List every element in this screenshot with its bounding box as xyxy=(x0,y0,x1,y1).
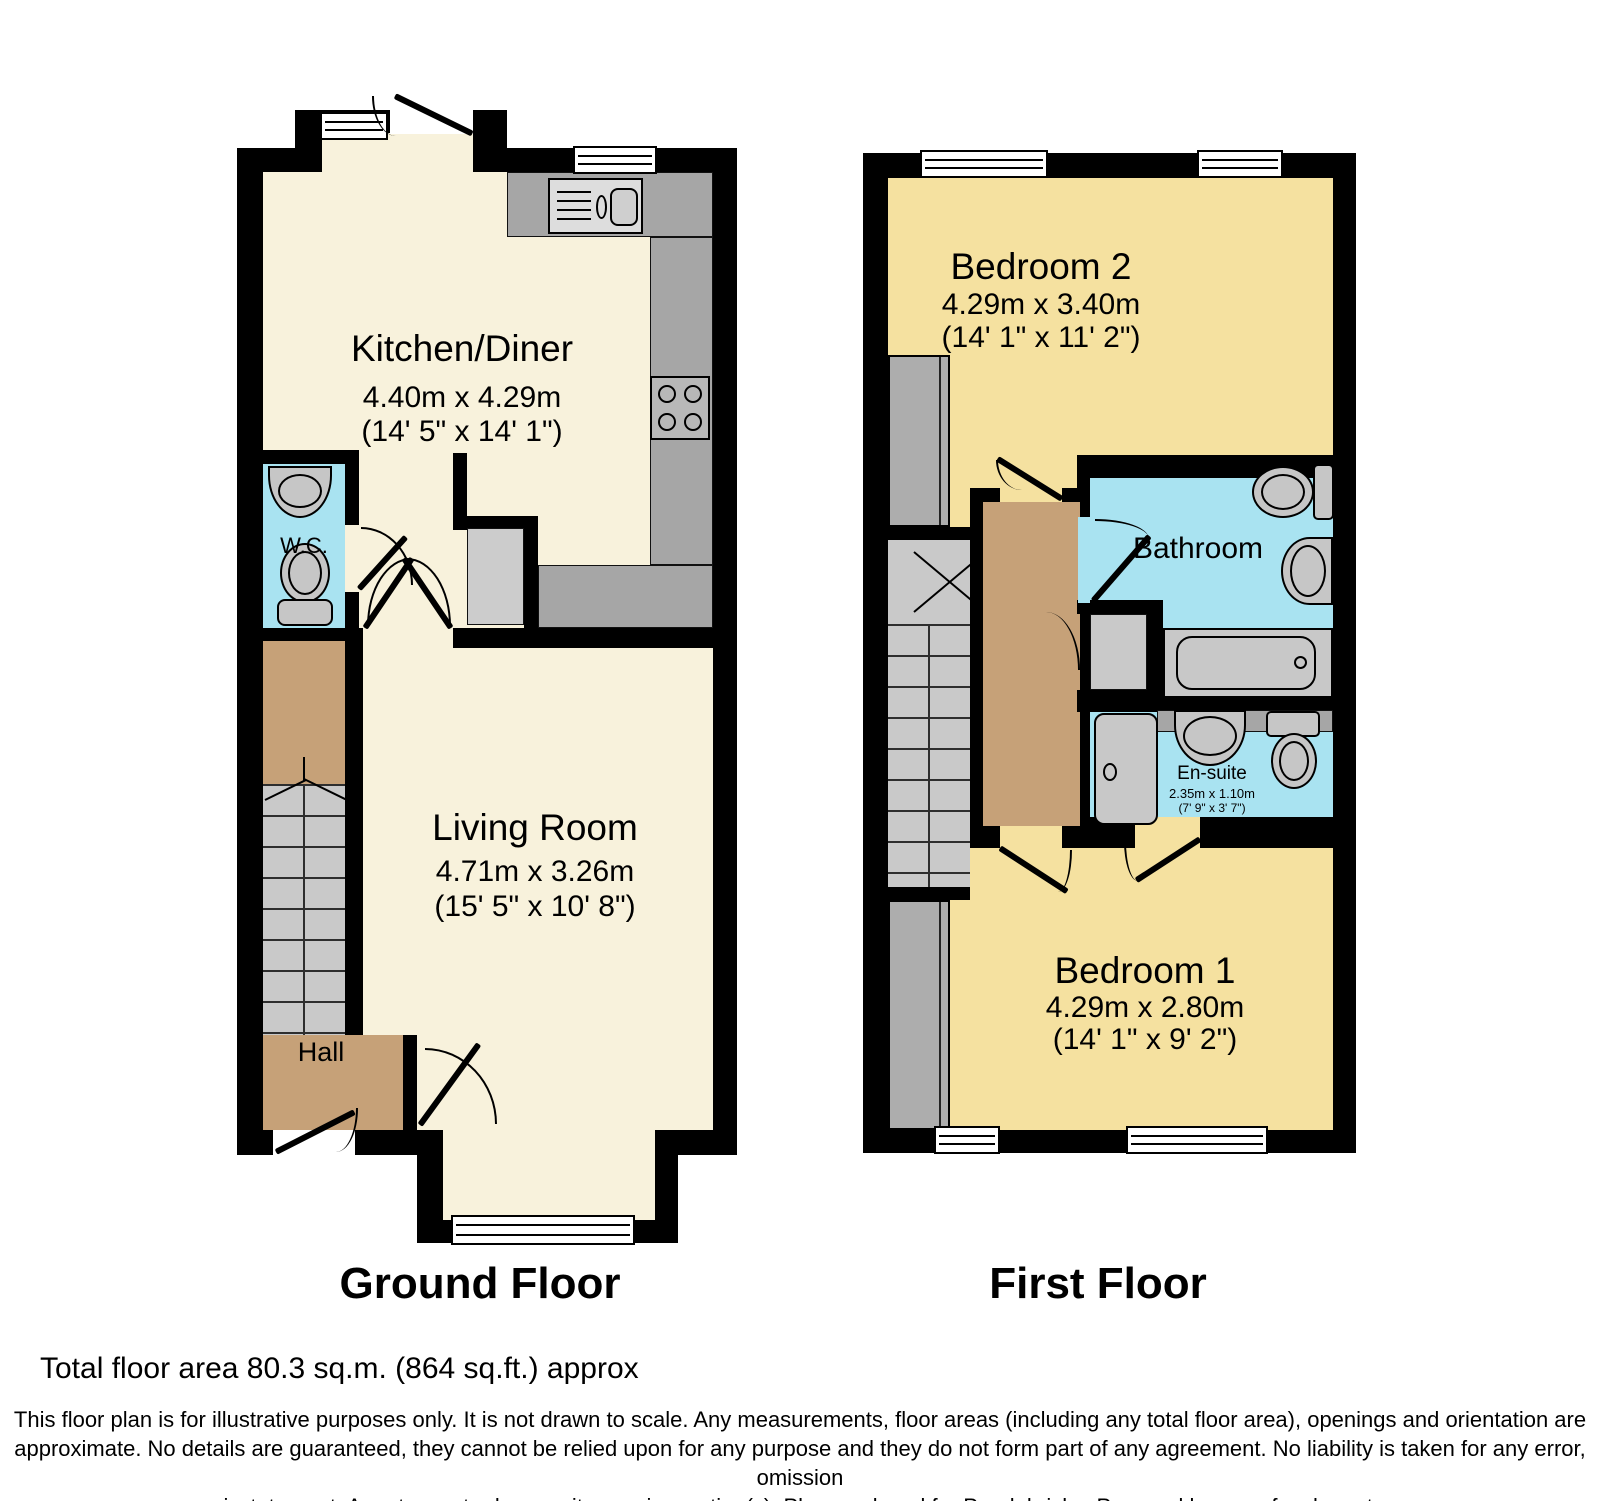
room-dim-metric: 4.29m x 3.40m xyxy=(942,290,1140,320)
room-dim-metric: 4.40m x 4.29m xyxy=(363,383,561,413)
stairs xyxy=(263,784,345,1035)
door-opening xyxy=(1000,826,1062,848)
cupboard xyxy=(1090,614,1147,690)
room-title-wc: W.C. xyxy=(280,535,328,557)
window xyxy=(1197,150,1283,178)
wall xyxy=(403,1035,417,1130)
bathroom-cistern xyxy=(1313,464,1334,520)
room-dim-metric: 4.71m x 3.26m xyxy=(436,857,634,887)
hob-ring xyxy=(684,413,702,431)
window xyxy=(451,1215,635,1245)
bathroom-basin-bowl xyxy=(1290,545,1326,597)
shower-drain xyxy=(1103,763,1117,781)
wall xyxy=(345,628,363,1035)
room-dim-metric: 2.35m x 1.10m xyxy=(1169,787,1255,800)
living-room-floor xyxy=(443,1130,655,1220)
room-title-bedroom1: Bedroom 1 xyxy=(1055,952,1236,989)
wall xyxy=(524,516,538,630)
window xyxy=(1126,1126,1268,1154)
room-dim-imperial: (14' 1" x 9' 2") xyxy=(1053,1025,1238,1055)
kitchen-cupboard xyxy=(467,528,524,625)
first-floor-caption: First Floor xyxy=(989,1259,1207,1309)
stair-treads xyxy=(263,784,345,1035)
ground-floor-caption: Ground Floor xyxy=(339,1259,620,1309)
room-dim-imperial: (15' 5" x 10' 8") xyxy=(434,892,635,922)
wardrobe xyxy=(888,900,950,1130)
wall xyxy=(263,628,345,641)
stairs xyxy=(888,540,970,887)
wardrobe xyxy=(888,355,950,527)
disclaimer-line: approximate. No details are guaranteed, … xyxy=(0,1434,1600,1492)
room-title-bathroom: Bathroom xyxy=(1133,534,1263,564)
kitchen-counter xyxy=(538,565,713,628)
disclaimer-line: or misstatement. A party must rely upon … xyxy=(0,1492,1600,1501)
stair-arrow xyxy=(303,757,305,781)
wall xyxy=(345,450,359,525)
shower-icon xyxy=(1094,713,1158,825)
disclaimer-line: This floor plan is for illustrative purp… xyxy=(0,1405,1600,1434)
wall xyxy=(453,453,467,518)
disclaimer: This floor plan is for illustrative purp… xyxy=(0,1405,1600,1501)
room-title-kitchen: Kitchen/Diner xyxy=(351,330,573,367)
wall xyxy=(453,628,713,648)
bath-icon xyxy=(1163,628,1333,698)
room-dim-imperial: (14' 5" x 14' 1") xyxy=(361,417,562,447)
wall xyxy=(345,592,359,628)
ensuite-basin-bowl xyxy=(1183,716,1237,756)
room-title-ensuite: En-suite xyxy=(1177,764,1247,783)
room-title-bedroom2: Bedroom 2 xyxy=(951,248,1132,285)
room-dim-imperial: (14' 1" x 11' 2") xyxy=(942,323,1141,353)
room-title-living: Living Room xyxy=(432,809,638,846)
ensuite-toilet-bowl xyxy=(1279,741,1309,781)
hob-ring xyxy=(658,413,676,431)
sink-bowl xyxy=(610,188,638,226)
wc-basin-bowl xyxy=(278,474,322,508)
bathroom-toilet-bowl xyxy=(1261,474,1305,510)
total-floor-area: Total floor area 80.3 sq.m. (864 sq.ft.)… xyxy=(40,1352,639,1386)
window xyxy=(920,150,1048,178)
bathroom-basin-icon xyxy=(1281,537,1333,605)
floor-plan: Kitchen/Diner 4.40m x 4.29m (14' 5" x 14… xyxy=(0,0,1600,1501)
kitchen-living-doorway xyxy=(363,628,453,648)
sink-tap xyxy=(596,195,607,219)
window xyxy=(934,1126,1000,1154)
sink-drainer xyxy=(557,191,591,223)
bath-drain xyxy=(1294,656,1307,669)
room-title-hall: Hall xyxy=(298,1039,345,1066)
stair-treads xyxy=(888,624,970,887)
window xyxy=(573,146,657,174)
kitchen-sink-icon xyxy=(548,178,643,234)
wc-cistern xyxy=(277,599,333,626)
hob-icon xyxy=(650,376,710,440)
door-opening xyxy=(1078,517,1090,603)
room-dim-imperial: (7' 9" x 3' 7") xyxy=(1178,802,1245,814)
hob-ring xyxy=(684,385,702,403)
room-dim-metric: 4.29m x 2.80m xyxy=(1046,993,1244,1023)
hob-ring xyxy=(658,385,676,403)
